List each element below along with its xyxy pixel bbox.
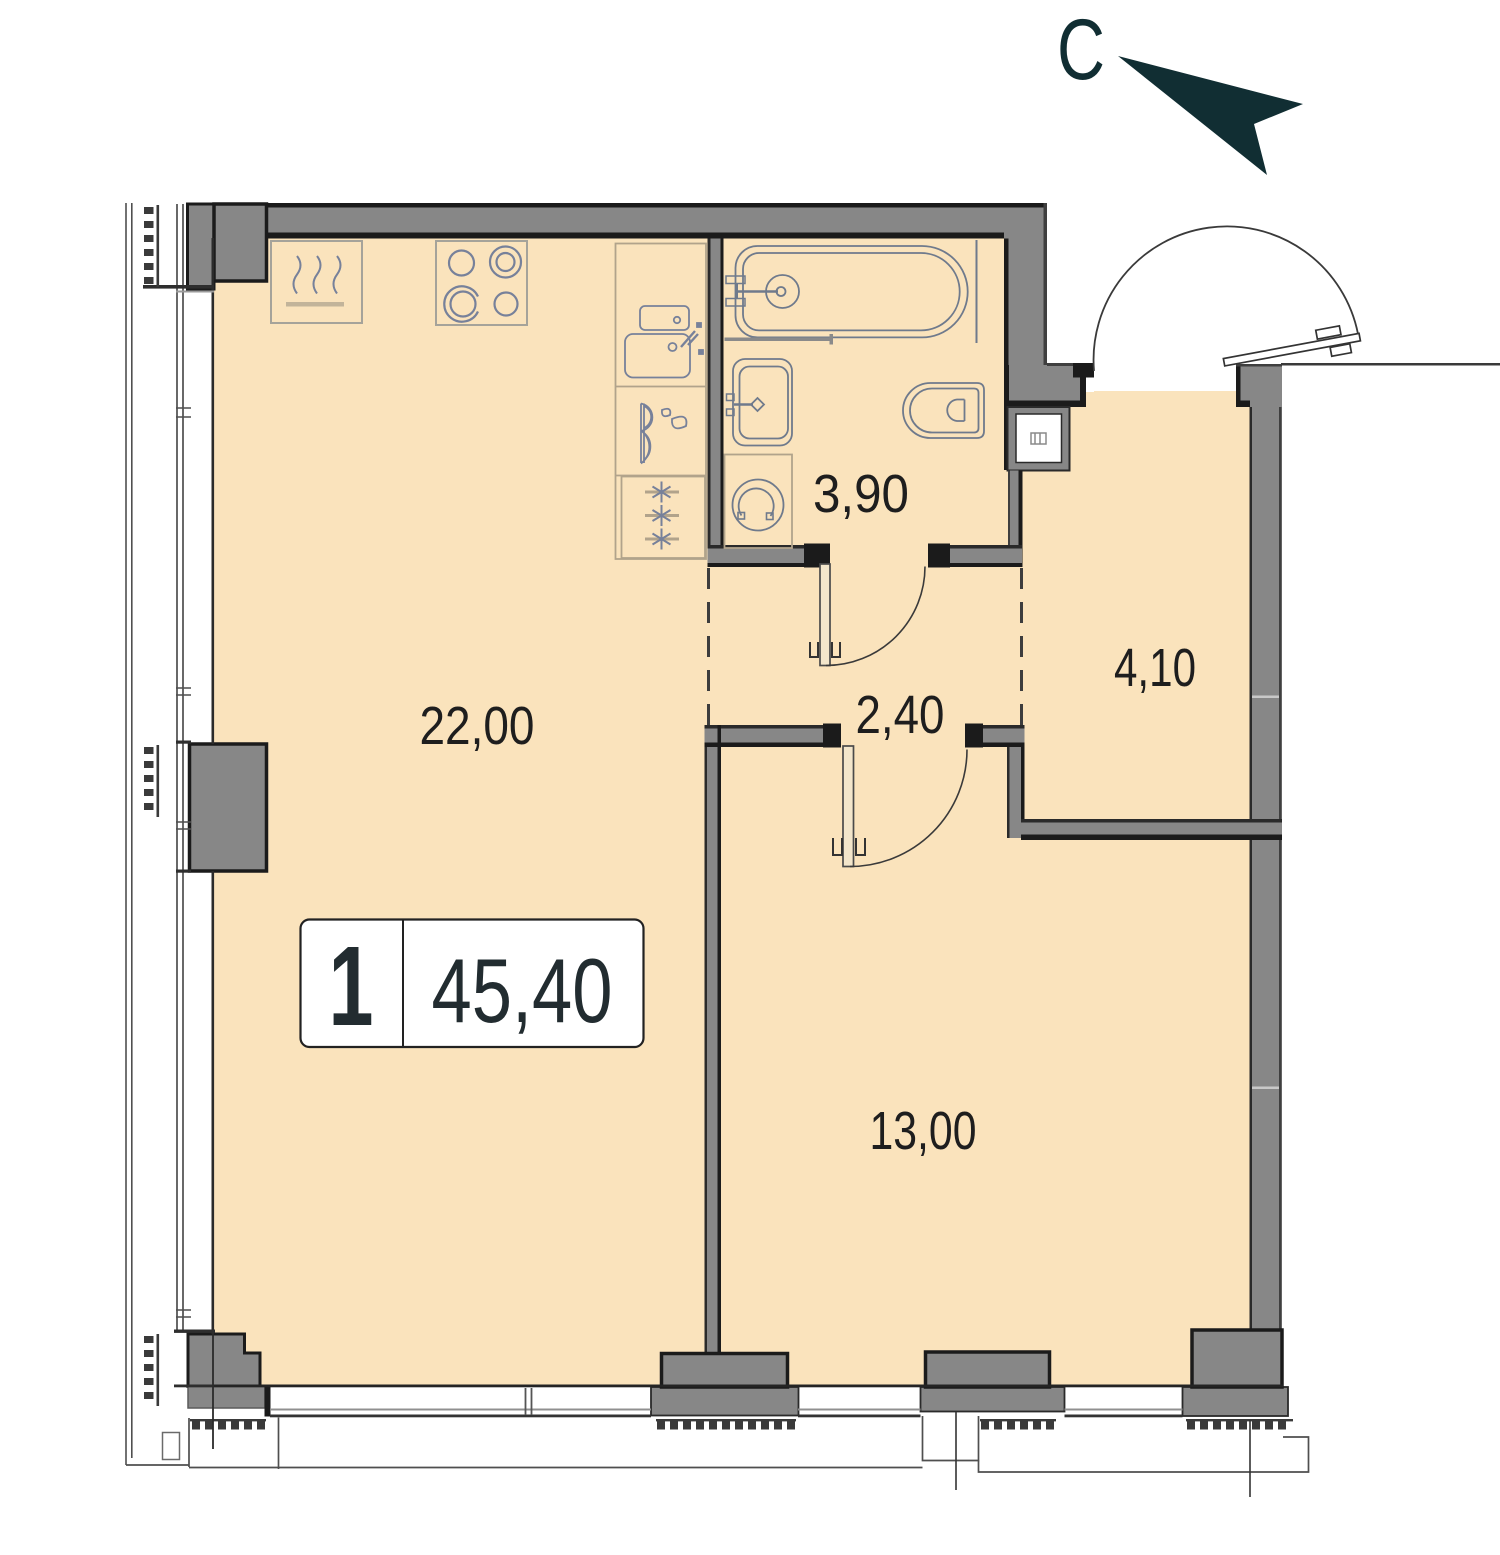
svg-text:45,40: 45,40 bbox=[432, 941, 613, 1042]
svg-text:C: C bbox=[1057, 2, 1105, 98]
svg-text:4,10: 4,10 bbox=[1114, 638, 1196, 698]
svg-text:2,40: 2,40 bbox=[856, 685, 945, 745]
svg-text:3,90: 3,90 bbox=[813, 464, 909, 524]
svg-text:13,00: 13,00 bbox=[870, 1101, 977, 1161]
svg-text:1: 1 bbox=[329, 923, 374, 1049]
svg-text:22,00: 22,00 bbox=[420, 696, 535, 756]
